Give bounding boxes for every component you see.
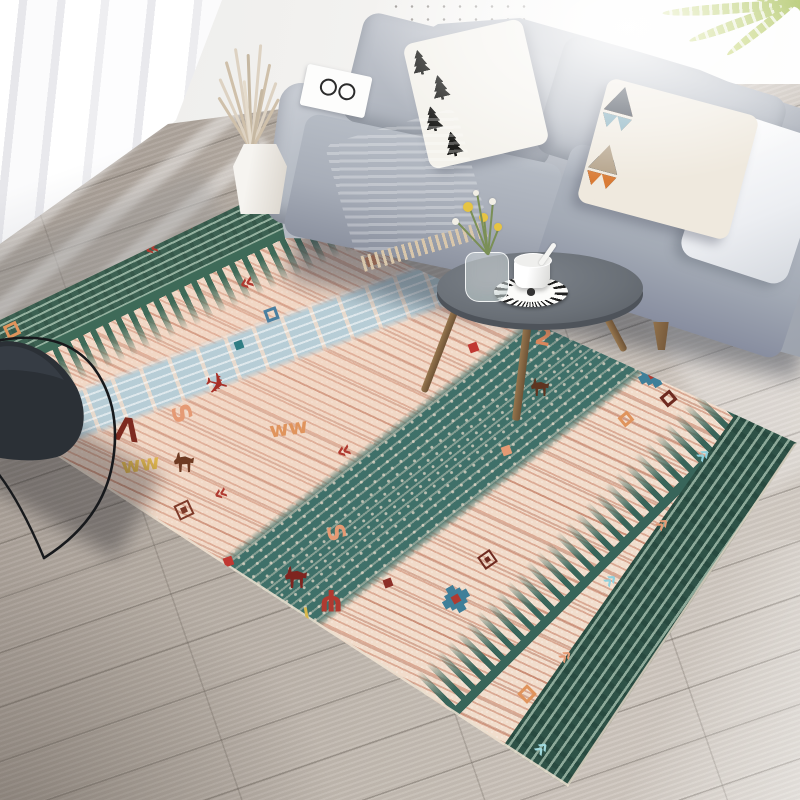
dried-branches <box>250 48 254 150</box>
flower-bloom <box>489 198 496 205</box>
round-coffee-table <box>420 185 660 485</box>
flower-bloom <box>473 190 479 196</box>
flower-sprigs <box>420 185 550 275</box>
green-plant-fronds <box>686 0 800 157</box>
white-ceramic-vase <box>233 144 287 214</box>
flower-bloom <box>494 223 502 231</box>
table-leg <box>420 309 458 394</box>
living-room-product-photo: »»»»»»✈ΛS»»wwww2ψS»»»»»»»» <box>0 0 800 800</box>
pine-tree-icon <box>408 48 432 77</box>
flower-bloom <box>452 218 459 225</box>
pine-tree-icon <box>428 73 452 102</box>
flower-bloom <box>463 202 473 212</box>
gray-fabric-sofa <box>0 0 800 800</box>
